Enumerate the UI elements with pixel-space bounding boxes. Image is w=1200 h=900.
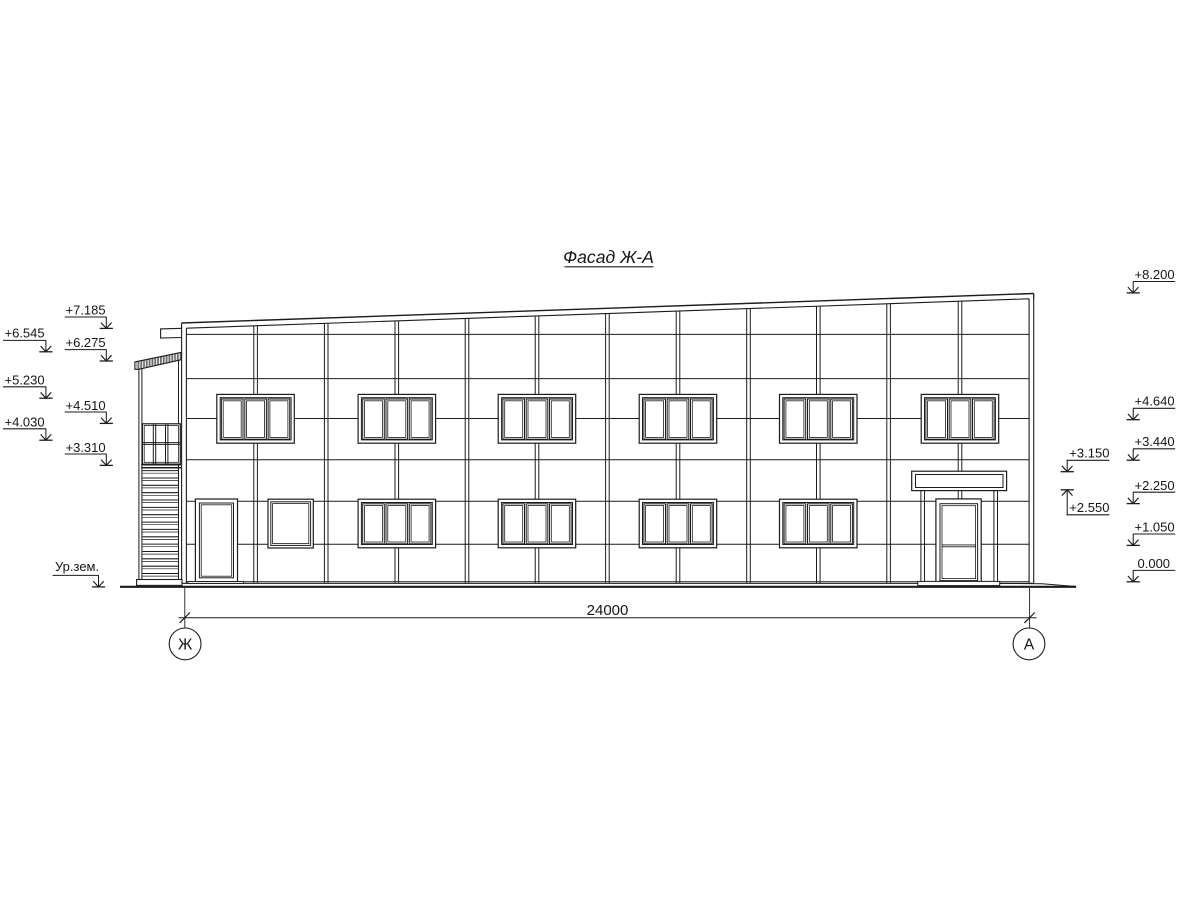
svg-text:+4.510: +4.510 <box>66 398 106 413</box>
svg-text:+3.310: +3.310 <box>66 440 106 455</box>
svg-text:+2.550: +2.550 <box>1069 500 1109 515</box>
svg-text:Фасад Ж-А: Фасад Ж-А <box>563 247 654 267</box>
svg-text:+5.230: +5.230 <box>5 373 45 388</box>
svg-text:+7.185: +7.185 <box>66 303 106 318</box>
svg-text:Ж: Ж <box>178 637 193 654</box>
svg-text:+1.050: +1.050 <box>1135 519 1175 534</box>
svg-text:24000: 24000 <box>587 602 629 619</box>
svg-text:0.000: 0.000 <box>1138 556 1171 571</box>
svg-text:+3.150: +3.150 <box>1069 446 1109 461</box>
svg-text:+4.030: +4.030 <box>5 415 45 430</box>
svg-text:+3.440: +3.440 <box>1135 434 1175 449</box>
svg-text:+4.640: +4.640 <box>1135 394 1175 409</box>
svg-text:+8.200: +8.200 <box>1135 267 1175 282</box>
svg-text:А: А <box>1024 637 1035 654</box>
svg-text:+6.545: +6.545 <box>5 326 45 341</box>
svg-text:Ур.зем.: Ур.зем. <box>55 559 99 574</box>
svg-text:+2.250: +2.250 <box>1135 478 1175 493</box>
svg-text:+6.275: +6.275 <box>66 335 106 350</box>
